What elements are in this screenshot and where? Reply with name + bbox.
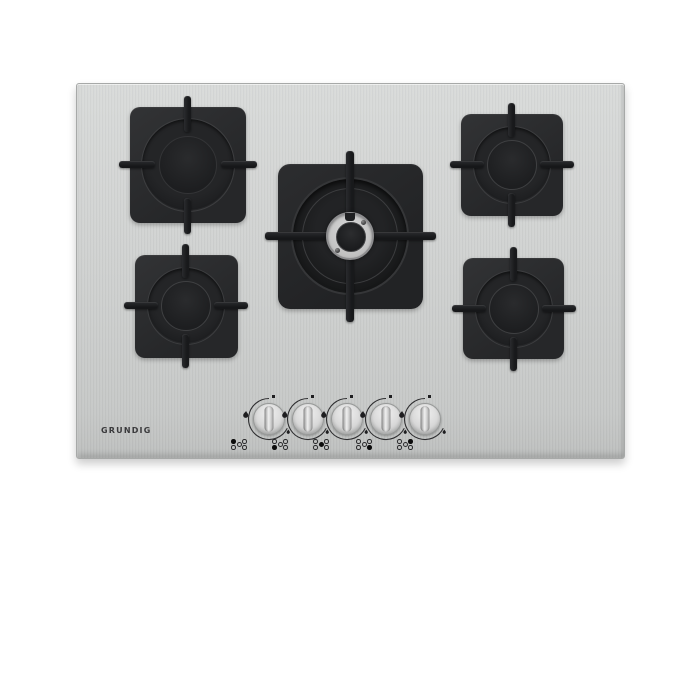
burner-cap [487,140,537,190]
grate-bar-south [508,193,515,227]
grate-bar-east [221,161,257,168]
grate-bar-east [540,161,574,168]
indicator-dot-front-left [231,445,236,450]
burner-rear-right [461,114,563,216]
burner-position-indicator [313,439,329,450]
grate-bar-west [124,302,158,309]
knob-grip [382,406,391,432]
gas-hob-surface: GRUNDIG [76,83,625,459]
grate-bar-north [182,244,189,278]
control-knob[interactable] [409,403,441,435]
wok-burner-cap [336,222,366,252]
indicator-dot-rear-right [324,439,329,444]
burner-control-rear-right[interactable] [401,395,449,467]
burner-rear-left [130,107,246,223]
indicator-dot-rear-right [408,439,413,444]
indicator-dot-front-left [397,445,402,450]
off-position-marker-icon [311,395,314,398]
grate-bar-north [508,103,515,137]
indicator-dot-rear-left [397,439,402,444]
grate-bar-west [119,161,155,168]
grate-bar-west [450,161,484,168]
burner-center-wok [278,164,423,309]
grate-bar-south [510,337,517,371]
control-knob[interactable] [370,403,402,435]
burner-cap [161,281,211,331]
knob-grip [343,406,352,432]
grate-bar-west [265,232,333,240]
indicator-dot-rear-left [356,439,361,444]
screw-icon [361,220,366,225]
indicator-dot-front-left [356,445,361,450]
indicator-dot-rear-right [367,439,372,444]
product-photo: GRUNDIG [0,0,700,700]
indicator-dot-front-right [324,445,329,450]
grate-bar-east [368,232,436,240]
burner-position-indicator [272,439,288,450]
grate-bar-south [184,198,191,234]
brand-logo: GRUNDIG [101,426,152,435]
grate-bar-south [182,334,189,368]
off-position-marker-icon [428,395,431,398]
indicator-dot-front-left [272,445,277,450]
burner-position-indicator [231,439,247,450]
indicator-dot-front-left [313,445,318,450]
grate-bar-north [510,247,517,281]
indicator-dot-front-right [408,445,413,450]
control-knob[interactable] [292,403,324,435]
indicator-dot-rear-right [242,439,247,444]
grate-bar-east [542,305,576,312]
off-position-marker-icon [389,395,392,398]
screw-icon [335,248,340,253]
indicator-dot-front-right [367,445,372,450]
steel-ring-notch [345,213,355,221]
grate-bar-north [184,96,191,132]
grate-bar-south [346,254,354,322]
indicator-dot-rear-left [313,439,318,444]
burner-position-indicator [397,439,413,450]
indicator-dot-rear-left [272,439,277,444]
off-position-marker-icon [350,395,353,398]
burner-front-right [463,258,564,359]
indicator-dot-front-right [283,445,288,450]
burner-cap [159,136,217,194]
indicator-dot-rear-left [231,439,236,444]
grate-bar-east [214,302,248,309]
control-knob[interactable] [331,403,363,435]
knob-grip [421,406,430,432]
burner-position-indicator [356,439,372,450]
indicator-dot-front-right [242,445,247,450]
control-knob[interactable] [253,403,285,435]
knob-grip [304,406,313,432]
burner-cap [489,284,539,334]
indicator-dot-rear-right [283,439,288,444]
grate-bar-west [452,305,486,312]
large-flame-icon [243,411,248,418]
off-position-marker-icon [272,395,275,398]
small-flame-icon [443,430,446,434]
grate-bar-north [346,151,354,219]
burner-front-left [135,255,238,358]
knob-grip [265,406,274,432]
